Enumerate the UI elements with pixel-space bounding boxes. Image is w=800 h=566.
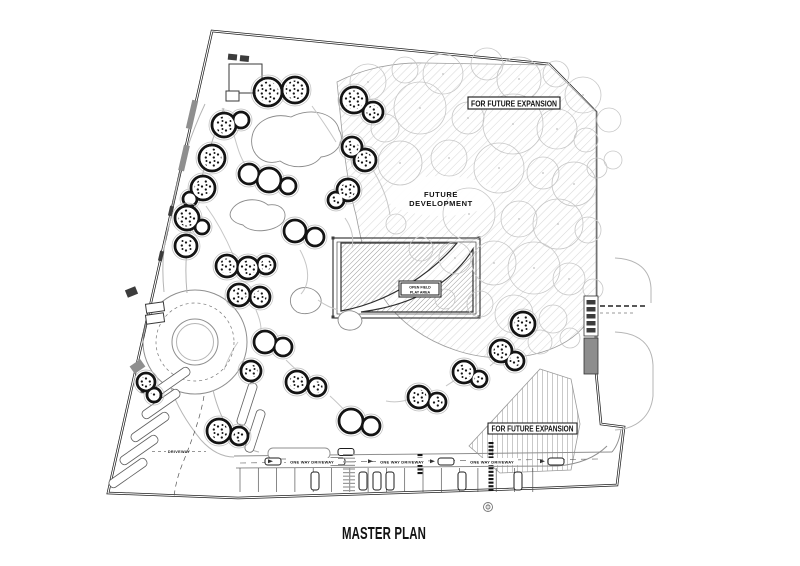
crosswalk-bar bbox=[489, 442, 494, 444]
tree-center-dot bbox=[542, 172, 544, 174]
tree-center-dot bbox=[468, 213, 470, 215]
crosswalk-bar bbox=[489, 449, 494, 451]
crosswalk-bar bbox=[343, 476, 355, 477]
crosswalk-bar bbox=[489, 482, 494, 484]
tree-center-dot bbox=[498, 167, 500, 169]
one-way-driveway-label: ONE WAY DRIVEWAY bbox=[470, 460, 514, 465]
one-way-driveway-label: ONE WAY DRIVEWAY bbox=[290, 460, 334, 465]
one-way-arrow bbox=[368, 459, 373, 463]
tree-center-dot bbox=[518, 218, 520, 220]
crosswalk-bar bbox=[489, 478, 494, 480]
building-pod-cluster bbox=[283, 368, 329, 399]
tree-center-dot bbox=[467, 117, 469, 119]
parked-car bbox=[359, 472, 367, 490]
crosswalk-bar bbox=[489, 485, 494, 487]
crosswalk-bar bbox=[343, 472, 355, 473]
tree-center-dot bbox=[512, 123, 514, 125]
pond bbox=[338, 311, 362, 330]
tree-center-dot bbox=[442, 73, 444, 75]
future-development-label-line1: FUTURE bbox=[424, 190, 458, 199]
parked-car bbox=[514, 472, 522, 490]
crosswalk-bar bbox=[489, 453, 494, 455]
crosswalk-bar bbox=[343, 468, 355, 469]
building-pod-cluster bbox=[281, 217, 327, 249]
crosswalk-bar bbox=[489, 446, 494, 448]
play-corner-mark bbox=[332, 316, 335, 319]
tree-center-dot bbox=[533, 267, 535, 269]
driveway-label: DRIVEWAY bbox=[168, 450, 190, 454]
tree-center-dot bbox=[399, 162, 401, 164]
tree-center-dot bbox=[557, 223, 559, 225]
crosswalk-bar bbox=[418, 468, 423, 470]
expansion-label-top: FOR FUTURE EXPANSION bbox=[471, 99, 557, 109]
dropoff-lane bbox=[268, 448, 330, 459]
future-development-label-line2: DEVELOPMENT bbox=[409, 199, 473, 208]
tree-center-dot bbox=[556, 128, 558, 130]
north-symbol-icon bbox=[484, 503, 493, 512]
play-corner-mark bbox=[332, 237, 335, 240]
driveway-centerline bbox=[174, 396, 204, 497]
parked-car bbox=[311, 472, 319, 490]
crosswalk-bar bbox=[418, 465, 423, 467]
building-pod-cluster bbox=[405, 383, 449, 414]
pond bbox=[252, 112, 342, 167]
car-in-lane bbox=[265, 458, 281, 465]
pond bbox=[290, 288, 321, 314]
pond bbox=[230, 200, 285, 231]
building-pod-cluster bbox=[251, 328, 295, 359]
crosswalk-bar bbox=[343, 486, 355, 487]
tree-center-dot bbox=[582, 94, 584, 96]
crosswalk-bar bbox=[489, 489, 494, 491]
parked-car bbox=[373, 472, 381, 490]
crosswalk-bar bbox=[418, 454, 423, 456]
building-pod-cluster bbox=[172, 232, 200, 260]
building-pod-cluster bbox=[196, 142, 228, 174]
master-plan-sheet: ONE WAY DRIVEWAYONE WAY DRIVEWAYONE WAY … bbox=[0, 0, 800, 566]
building-pod-cluster bbox=[180, 173, 218, 209]
one-way-driveway-label: ONE WAY DRIVEWAY bbox=[380, 460, 424, 465]
building-pod-cluster bbox=[508, 309, 538, 339]
building-pod-cluster bbox=[236, 161, 299, 197]
crosswalk-bar bbox=[343, 479, 355, 480]
play-area-label-line1: OPEN FIELD bbox=[409, 286, 431, 290]
tree-center-dot bbox=[454, 257, 456, 259]
play-area-label-line2: PLAY AREA bbox=[410, 291, 431, 295]
tree-center-dot bbox=[573, 183, 575, 185]
one-way-arrow bbox=[430, 459, 435, 463]
tree-center-dot bbox=[419, 107, 421, 109]
crosswalk-bar bbox=[489, 471, 494, 473]
tree-center-dot bbox=[568, 278, 570, 280]
parked-car bbox=[386, 472, 394, 490]
roundabout-lane-ring bbox=[156, 303, 234, 381]
tree-center-dot bbox=[367, 81, 369, 83]
car-in-lane bbox=[548, 458, 564, 465]
crosswalk-bar bbox=[343, 454, 355, 455]
expansion-label-bottom: FOR FUTURE EXPANSION bbox=[492, 425, 574, 434]
tree-canopy bbox=[604, 151, 622, 169]
tree-center-dot bbox=[493, 262, 495, 264]
service-building-annex bbox=[226, 91, 239, 101]
tree-center-dot bbox=[518, 78, 520, 80]
crosswalk-bar bbox=[489, 467, 494, 469]
crosswalk-bar bbox=[343, 458, 355, 459]
crosswalk-bar bbox=[418, 472, 423, 474]
building-pod-cluster bbox=[172, 203, 212, 237]
crosswalk-bar bbox=[343, 483, 355, 484]
building-pod-cluster bbox=[450, 358, 490, 390]
building-pod-cluster bbox=[251, 74, 311, 109]
crosswalk-bar bbox=[489, 474, 494, 476]
building-pod-cluster bbox=[336, 406, 383, 438]
building-pod-cluster bbox=[238, 358, 264, 384]
crosswalk-bar bbox=[343, 490, 355, 491]
crosswalk-bar bbox=[343, 461, 355, 462]
building-pod-cluster bbox=[209, 109, 252, 140]
gate-house-lower bbox=[584, 338, 598, 374]
tree-center-dot bbox=[448, 157, 450, 159]
building-pod-cluster bbox=[213, 252, 278, 282]
tree-center-dot bbox=[486, 63, 488, 65]
parked-car bbox=[458, 472, 466, 490]
tree-canopy bbox=[597, 108, 621, 132]
roundabout-island bbox=[172, 319, 218, 365]
sheet-title: MASTER PLAN bbox=[342, 523, 426, 543]
car-in-lane bbox=[438, 458, 454, 465]
crosswalk-bar bbox=[343, 465, 355, 466]
roundabout-island-inner bbox=[177, 324, 214, 361]
site-plan-drawing: ONE WAY DRIVEWAYONE WAY DRIVEWAYONE WAY … bbox=[0, 0, 800, 566]
